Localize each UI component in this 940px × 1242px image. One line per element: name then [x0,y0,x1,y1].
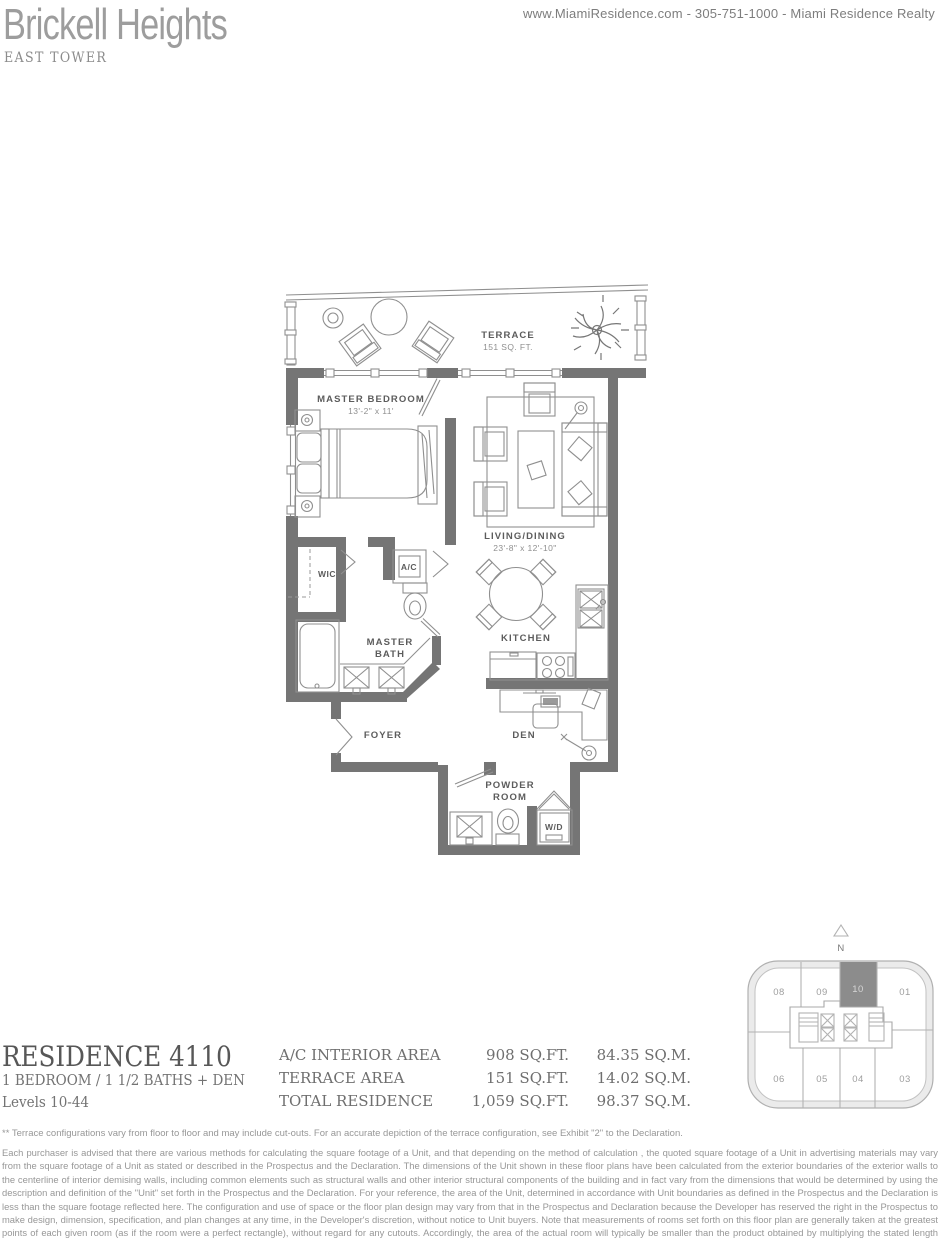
keyplan-unit-04: 04 [852,1074,864,1085]
tower-name: EAST TOWER [4,50,107,66]
keyplan-unit-03: 03 [899,1074,911,1085]
room-label-master-bath-2: BATH [375,649,405,660]
legal-disclaimer: Each purchaser is advised that there are… [2,1146,938,1242]
residence-levels: Levels 10-44 [2,1093,89,1111]
room-label-kitchen: KITCHEN [501,633,551,644]
residence-title: RESIDENCE 4110 [2,1040,232,1073]
room-dims-living: 23'-8" x 12'-10" [493,543,556,553]
room-label-powder-2: ROOM [493,792,527,803]
brand-logo: Brickell Heights [3,0,227,50]
master-bedroom-furniture [295,410,437,517]
room-label-living: LIVING/DINING [484,531,566,542]
windows [287,369,562,516]
room-label-master-bedroom: MASTER BEDROOM [317,394,425,405]
dining-set [476,559,555,629]
area-row-sqm: 84.35 SQ.M. [569,1044,691,1067]
keyplan-unit-05: 05 [816,1074,828,1085]
room-label-wd: W/D [545,822,563,832]
keyplan-unit-10: 10 [852,984,864,995]
key-plan: N [740,915,940,1130]
area-row-sqm: 98.37 SQ.M. [569,1090,691,1113]
room-label-powder-1: POWDER [485,780,534,791]
area-row-sqm: 14.02 SQ.M. [569,1067,691,1090]
terrace-furniture [323,295,629,366]
living-furniture [474,383,607,527]
room-label-foyer: FOYER [364,730,402,741]
room-label-terrace: TERRACE [481,330,535,341]
north-arrow-icon [834,925,848,936]
keyplan-unit-01: 01 [899,987,911,998]
room-label-master-bath-1: MASTER [367,637,414,648]
residence-subtitle: 1 BEDROOM / 1 1/2 BATHS + DEN [2,1071,245,1089]
room-label-ac: A/C [401,562,417,572]
area-row-label: TERRACE AREA [279,1067,447,1090]
keyplan-unit-08: 08 [773,987,785,998]
room-dims-master-bedroom: 13'-2" x 11' [348,406,394,416]
room-dims-terrace: 151 SQ. FT. [483,342,533,352]
contact-line: www.MiamiResidence.com - 305-751-1000 - … [523,6,935,21]
area-table: A/C INTERIOR AREA 908 SQ.FT. 84.35 SQ.M.… [279,1044,691,1114]
area-row-sqft: 908 SQ.FT. [447,1044,569,1067]
area-row-label: A/C INTERIOR AREA [279,1044,447,1067]
keyplan-unit-06: 06 [773,1074,785,1085]
area-row-sqft: 1,059 SQ.FT. [447,1090,569,1113]
terrace-note: ** Terrace configurations vary from floo… [2,1128,938,1139]
area-row-sqft: 151 SQ.FT. [447,1067,569,1090]
room-label-den: DEN [512,730,535,741]
plant-icon [571,295,629,360]
floorplan-page: Brickell Heights www.MiamiResidence.com … [0,0,940,1242]
den-furniture [500,688,607,760]
room-label-wic: WIC [318,569,336,579]
keyplan-unit-09: 09 [816,987,828,998]
keyplan-core [790,1001,892,1048]
north-label: N [837,943,844,954]
area-row-label: TOTAL RESIDENCE [279,1090,447,1113]
floor-plan: TERRACE 151 SQ. FT. [268,275,672,875]
